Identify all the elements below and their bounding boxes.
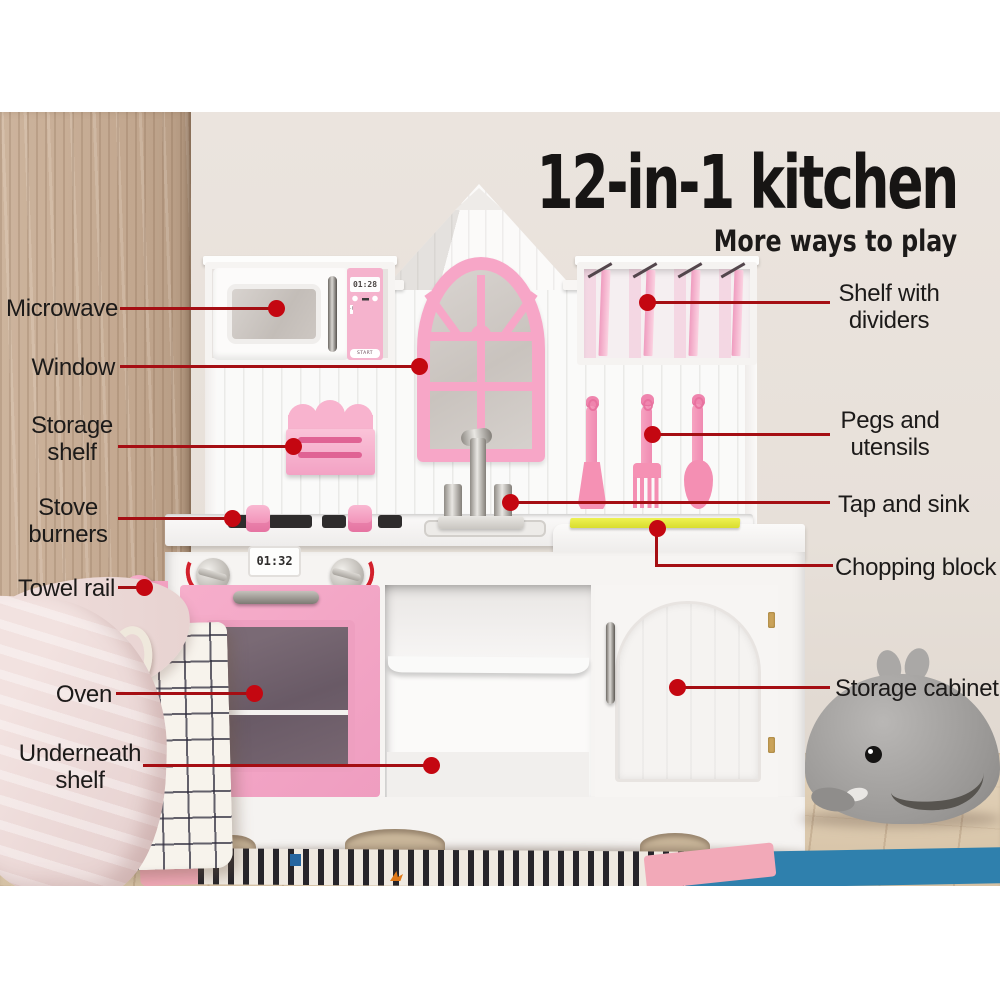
faucet-pipe bbox=[470, 438, 486, 520]
callout-dot-storage-shelf bbox=[285, 438, 302, 455]
callout-dot-chopping-block bbox=[649, 520, 666, 537]
callout-label-shelf-dividers: Shelf with dividers bbox=[833, 280, 945, 334]
window-fan-spoke bbox=[477, 275, 485, 331]
headline: 12-in-1 kitchen More ways to play bbox=[373, 146, 957, 256]
microwave-key: · bbox=[350, 305, 352, 314]
callout-dot-towel-rail bbox=[136, 579, 153, 596]
shelf-slot bbox=[298, 452, 362, 458]
callout-dot-shelf-dividers bbox=[639, 294, 656, 311]
callout-line-pegs-utensils bbox=[660, 433, 830, 436]
callout-line-chopping-block bbox=[655, 564, 833, 567]
stove-knob bbox=[348, 505, 372, 532]
callout-line-storage-cabinet bbox=[685, 686, 830, 689]
callout-dot-underneath-shelf bbox=[423, 757, 440, 774]
window-fan-spoke bbox=[424, 291, 460, 336]
window-fan-spoke bbox=[502, 291, 538, 336]
rug-stripe-section bbox=[198, 848, 693, 886]
callout-label-storage-cabinet: Storage cabinet bbox=[835, 675, 999, 702]
callout-label-pegs-utensils: Pegs and utensils bbox=[836, 407, 944, 461]
underneath-shelf bbox=[388, 656, 589, 673]
callout-dot-stove-burners bbox=[224, 510, 241, 527]
toy-fork bbox=[633, 463, 661, 478]
callout-line-stove-burners bbox=[118, 517, 226, 520]
stove-grate bbox=[322, 515, 346, 528]
callout-line-underneath-shelf bbox=[143, 764, 425, 767]
compartment-floor bbox=[387, 752, 589, 797]
callout-line-storage-shelf bbox=[118, 445, 287, 448]
headline-title: 12-in-1 kitchen bbox=[536, 146, 957, 220]
callout-label-microwave: Microwave bbox=[6, 295, 118, 322]
callout-dot-tap-sink bbox=[502, 494, 519, 511]
callout-line-tap-sink bbox=[517, 501, 830, 504]
callout-label-stove-burners: Stove burners bbox=[13, 494, 123, 548]
microwave-keypad: 1 2 3 4 5 6 7 8 9 · 0 · bbox=[350, 305, 380, 346]
window-horizontal-mullion bbox=[428, 382, 534, 391]
microwave-display: 01:28 bbox=[350, 277, 380, 292]
callout-line-microwave bbox=[120, 307, 270, 310]
spatula-handle bbox=[586, 406, 597, 466]
callout-label-storage-shelf: Storage shelf bbox=[17, 412, 127, 466]
cabinet-hinge bbox=[768, 737, 775, 753]
oven-timer-display: 01:32 bbox=[248, 546, 301, 577]
callout-dot-microwave bbox=[268, 300, 285, 317]
callout-line-shelf-dividers bbox=[655, 301, 830, 304]
callout-label-window: Window bbox=[31, 354, 115, 381]
rug-accent-mark bbox=[290, 854, 301, 866]
product-feature-image: 01:28 1 2 3 4 5 6 7 8 9 · 0 · START bbox=[0, 0, 1000, 1000]
cabinet-hinge bbox=[768, 612, 775, 628]
whale-eye bbox=[865, 746, 882, 763]
headline-subtitle: More ways to play bbox=[478, 227, 957, 256]
microwave-start-button: START bbox=[350, 349, 380, 358]
callout-line-window bbox=[120, 365, 413, 368]
callout-label-underneath-shelf: Underneath shelf bbox=[15, 740, 145, 794]
callout-dot-storage-cabinet bbox=[669, 679, 686, 696]
microwave-button-row bbox=[350, 295, 380, 302]
shelf-slot bbox=[298, 437, 362, 443]
callout-label-towel-rail: Towel rail bbox=[18, 575, 115, 602]
stove-knob bbox=[246, 505, 270, 532]
callout-label-oven: Oven bbox=[56, 681, 112, 708]
stove-grate bbox=[378, 515, 402, 528]
callout-label-tap-sink: Tap and sink bbox=[838, 491, 969, 518]
microwave-handle bbox=[328, 276, 337, 352]
callout-line-oven bbox=[116, 692, 248, 695]
oven-handle bbox=[233, 591, 319, 604]
callout-dot-window bbox=[411, 358, 428, 375]
callout-dot-pegs-utensils bbox=[644, 426, 661, 443]
callout-dot-oven bbox=[246, 685, 263, 702]
striped-rug bbox=[140, 849, 1000, 886]
faucet-base bbox=[438, 516, 524, 529]
cabinet-door-handle bbox=[606, 622, 615, 704]
stove-grate bbox=[268, 515, 312, 528]
callout-label-chopping-block: Chopping block bbox=[835, 554, 996, 581]
cabinet-door-panel bbox=[615, 601, 761, 782]
